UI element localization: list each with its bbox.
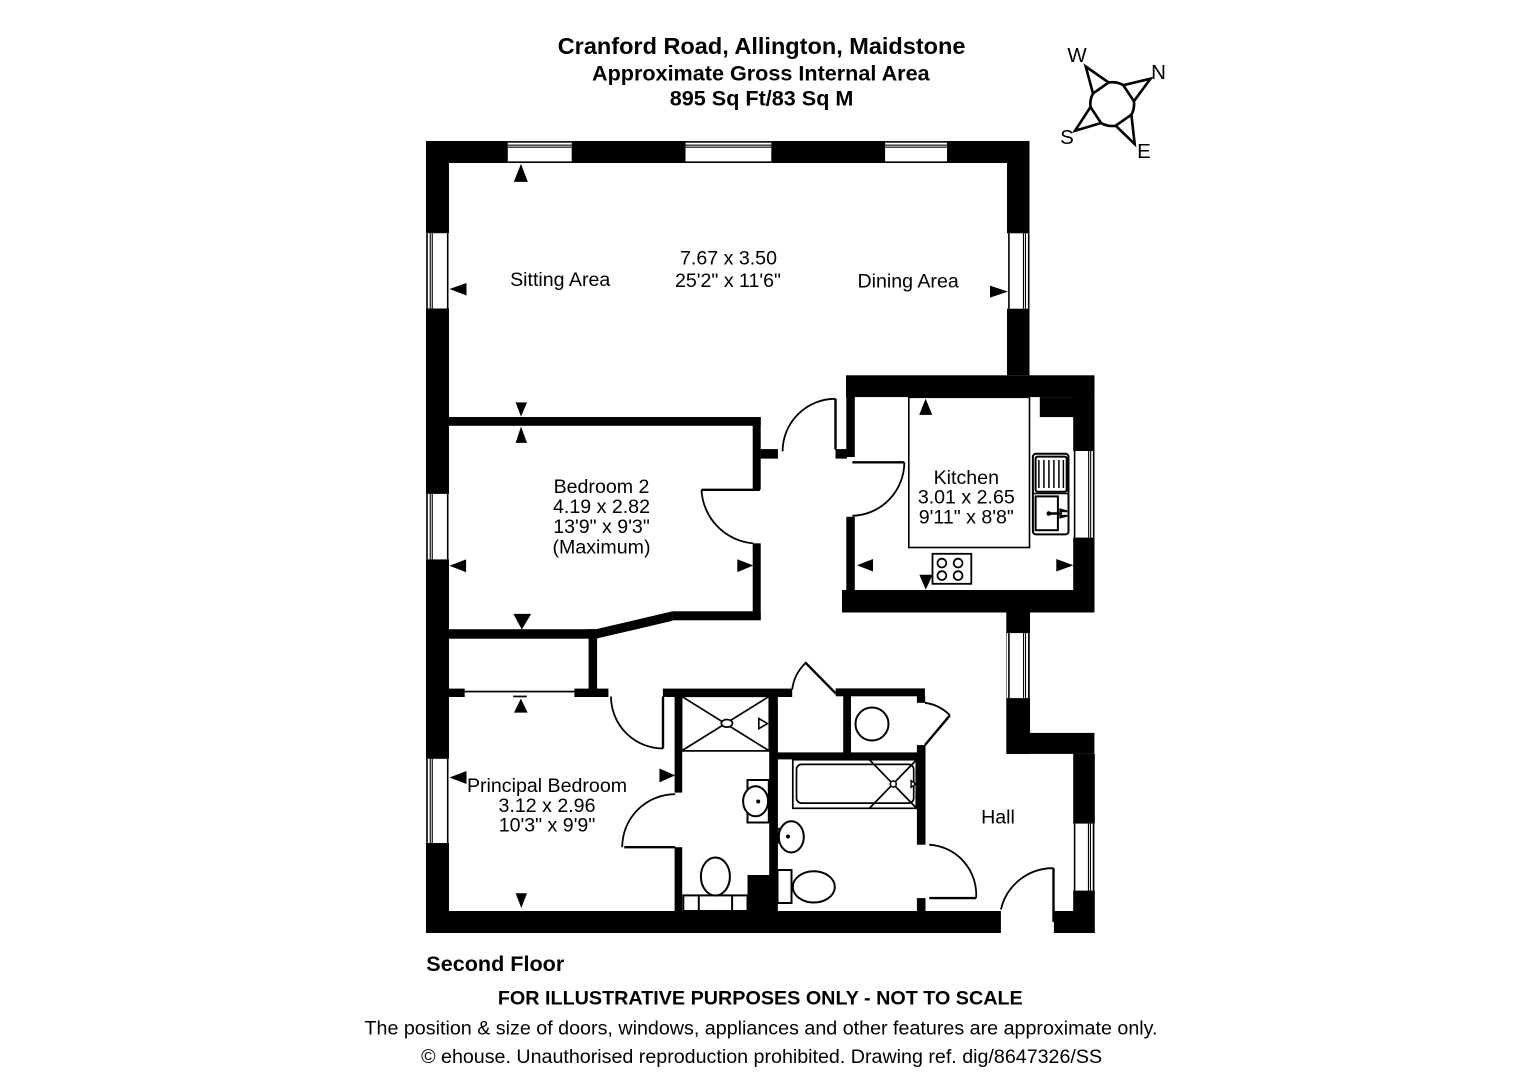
svg-text:The position & size of doors,: The position & size of doors, windows, a… <box>364 1017 1157 1039</box>
svg-text:FOR ILLUSTRATIVE PURPOSES ONLY: FOR ILLUSTRATIVE PURPOSES ONLY - NOT TO … <box>498 987 1023 1009</box>
svg-text:Kitchen: Kitchen <box>934 467 999 489</box>
svg-text:N: N <box>1151 61 1166 84</box>
svg-text:Dining Area: Dining Area <box>857 270 958 292</box>
svg-text:Sitting Area: Sitting Area <box>510 269 610 291</box>
svg-text:3.01 x 2.65: 3.01 x 2.65 <box>918 487 1015 509</box>
svg-text:(Maximum): (Maximum) <box>553 536 651 558</box>
svg-text:Second Floor: Second Floor <box>426 951 565 976</box>
svg-text:© ehouse. Unauthorised reprodu: © ehouse. Unauthorised reproduction proh… <box>421 1046 1102 1068</box>
svg-text:4.19 x 2.82: 4.19 x 2.82 <box>553 496 650 518</box>
svg-text:9'11" x 8'8": 9'11" x 8'8" <box>919 507 1014 529</box>
svg-text:895 Sq Ft/83 Sq M: 895 Sq Ft/83 Sq M <box>670 86 854 111</box>
svg-text:W: W <box>1067 44 1087 67</box>
svg-text:Approximate Gross Internal Are: Approximate Gross Internal Area <box>592 60 931 85</box>
svg-text:Hall: Hall <box>981 807 1015 829</box>
svg-text:10'3" x 9'9": 10'3" x 9'9" <box>499 814 596 836</box>
svg-text:S: S <box>1060 126 1074 149</box>
svg-text:13'9" x 9'3": 13'9" x 9'3" <box>553 516 650 538</box>
svg-text:25'2" x 11'6": 25'2" x 11'6" <box>675 270 781 292</box>
svg-text:Bedroom 2: Bedroom 2 <box>554 476 650 498</box>
svg-text:E: E <box>1137 140 1151 163</box>
svg-text:Cranford Road, Allington, Maid: Cranford Road, Allington, Maidstone <box>558 33 966 59</box>
svg-text:Principal Bedroom: Principal Bedroom <box>467 775 627 797</box>
svg-text:7.67 x 3.50: 7.67 x 3.50 <box>680 248 777 270</box>
